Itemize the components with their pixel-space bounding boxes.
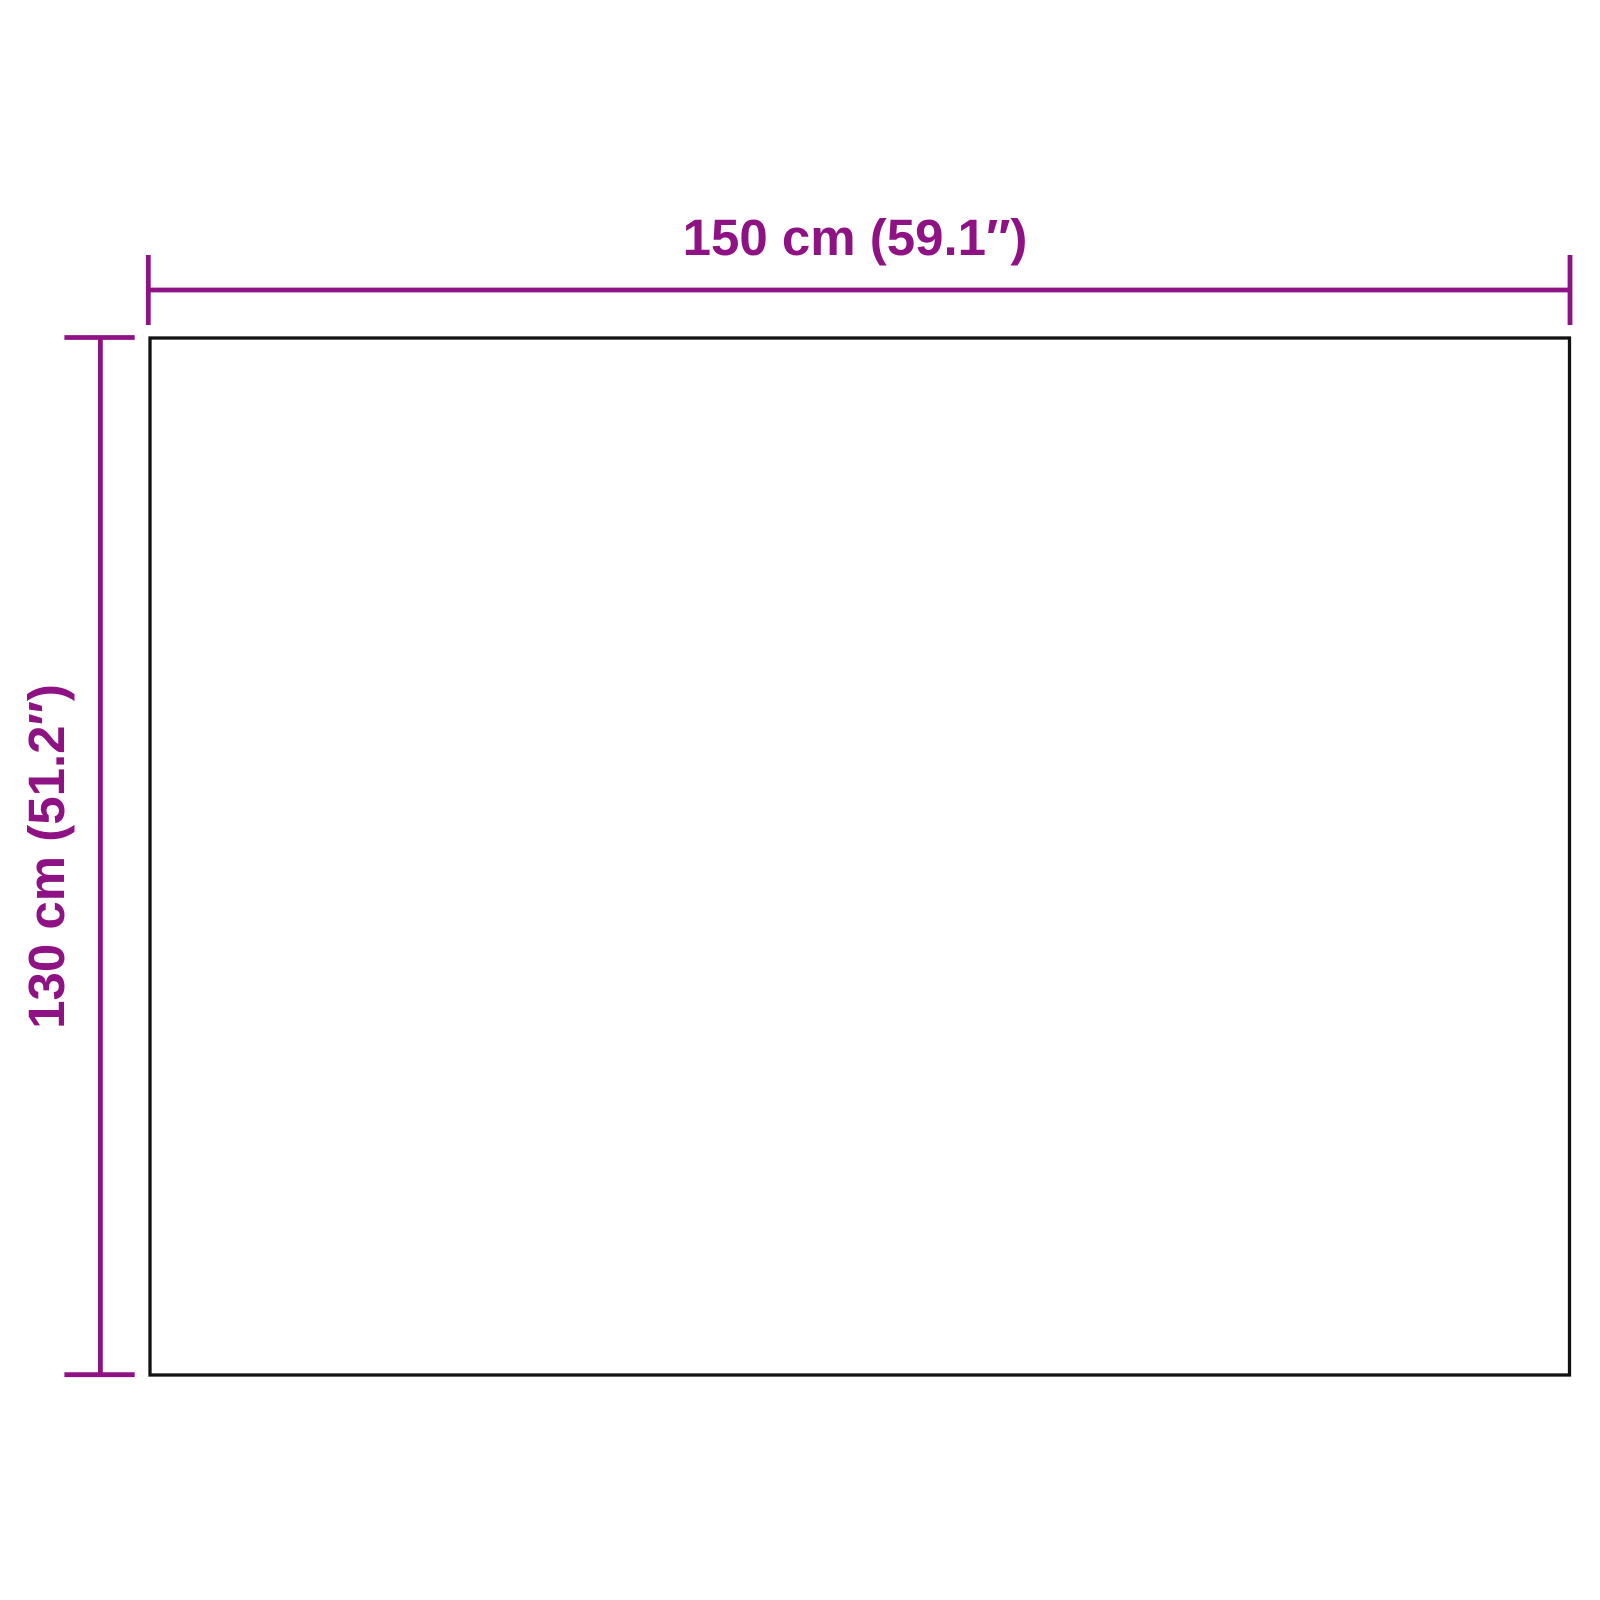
svg-text:150 cm (59.1″): 150 cm (59.1″) bbox=[683, 209, 1028, 266]
svg-text:130 cm (51.2″): 130 cm (51.2″) bbox=[18, 684, 75, 1029]
